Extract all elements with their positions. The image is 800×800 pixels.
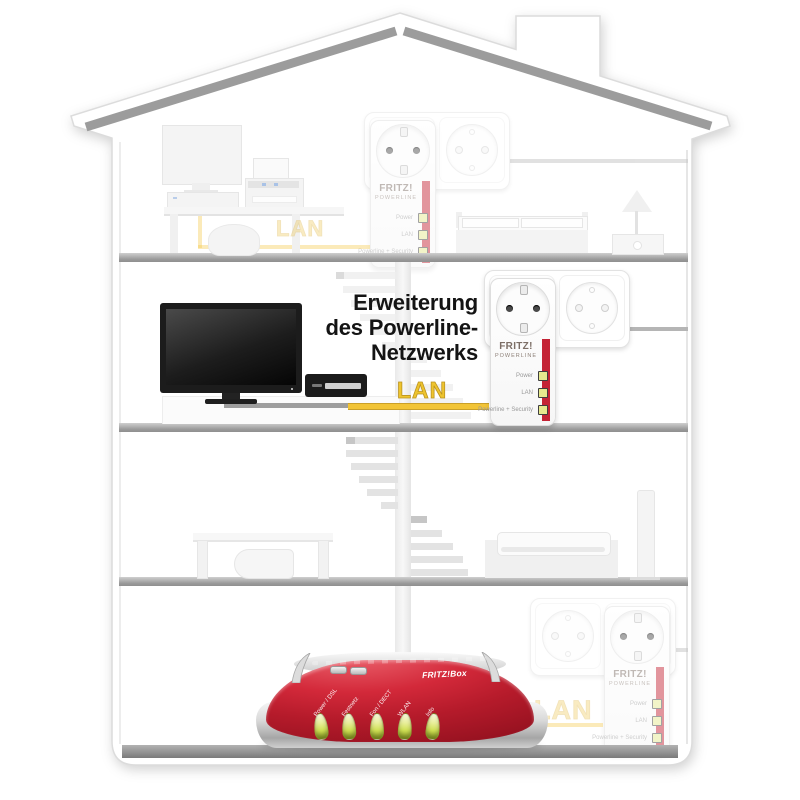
stair-step: [411, 370, 441, 377]
waste-bin: [208, 224, 260, 256]
table-leg: [197, 540, 208, 579]
adapter-brand: FRITZ! Powerline: [605, 669, 655, 687]
stair-step: [411, 516, 427, 523]
wlan-button: [330, 666, 347, 674]
fritzbox-router: FRITZ!Box Power / DSL Festnetz Fon / DEC…: [254, 646, 554, 754]
nightstand-knob: [633, 241, 642, 250]
tv-screen: [166, 309, 296, 385]
tv-stand-base: [205, 399, 257, 404]
socket-screw: [469, 129, 475, 135]
socket-hole: [601, 304, 609, 312]
power-led: [418, 213, 428, 223]
wall-socket: [446, 124, 498, 176]
earth-clip: [520, 323, 528, 333]
floor-lamp-base: [630, 577, 660, 580]
socket-screw: [565, 651, 571, 657]
socket-hole: [455, 146, 463, 154]
adapter-passthrough-socket: [376, 124, 430, 178]
powerline-adapter-main: FRITZ! Powerline Power LAN Powerline + S…: [484, 270, 634, 500]
printer-tray: [252, 196, 297, 203]
desk-leg: [170, 214, 178, 253]
socket-screw: [469, 165, 475, 171]
adapter-passthrough-socket: [610, 610, 664, 664]
earth-clip: [400, 165, 408, 175]
headline: Erweiterung des Powerline- Netzwerks: [300, 290, 478, 365]
pc-led: [173, 197, 177, 199]
lan-led: [538, 388, 548, 398]
headline-line-1: Erweiterung: [300, 290, 478, 315]
powerline-wall-wire-top: [506, 159, 688, 163]
stair-step: [346, 437, 355, 444]
adapter-passthrough-socket: [496, 282, 550, 336]
storage-box: [234, 549, 294, 579]
router-fin-left: [290, 653, 316, 683]
wall-socket: [566, 282, 618, 334]
led-row: Power: [491, 371, 551, 381]
sofa-seat-line: [501, 547, 605, 552]
earth-clip: [634, 651, 642, 661]
desktop-pc: [167, 192, 239, 208]
socket-hole: [647, 633, 654, 640]
earth-clip: [634, 613, 642, 623]
receiver-led: [312, 384, 322, 387]
led-row: LAN: [605, 716, 665, 726]
tv-standby-led: [291, 388, 293, 390]
stair-step: [411, 556, 463, 563]
stair-step: [411, 543, 453, 550]
desk-top: [164, 207, 344, 216]
power-led: [538, 371, 548, 381]
lan-led: [652, 716, 662, 726]
lan-label-top: LAN: [276, 216, 324, 242]
plate-cell: [559, 275, 625, 341]
earth-clip: [520, 285, 528, 295]
stair-step: [367, 489, 398, 496]
pillow: [462, 218, 519, 228]
stair-step: [411, 569, 468, 576]
monitor: [162, 125, 242, 185]
stair-step: [411, 530, 442, 537]
socket-hole: [533, 305, 540, 312]
socket-hole: [481, 146, 489, 154]
socket-hole: [386, 147, 393, 154]
adapter-body: FRITZ! Powerline Power LAN Powerline + S…: [490, 278, 556, 426]
receiver-display: [325, 383, 361, 389]
socket-hole: [506, 305, 513, 312]
adapter-brand: FRITZ! Powerline: [371, 183, 421, 201]
table-top: [193, 533, 333, 542]
stair-step: [381, 502, 398, 509]
socket-screw: [589, 323, 595, 329]
stair-step: [336, 272, 344, 279]
stair-step: [359, 476, 398, 483]
printer-led: [262, 183, 266, 186]
sofa-back: [497, 532, 611, 556]
bed-base: [456, 230, 588, 253]
lan-led: [418, 230, 428, 240]
powerline-security-led: [652, 733, 662, 743]
printer-led: [274, 183, 278, 186]
led-row: Power: [605, 699, 665, 709]
stair-step: [336, 272, 398, 279]
tv: [160, 303, 302, 393]
socket-screw: [589, 287, 595, 293]
socket-screw: [565, 615, 571, 621]
led-row: LAN: [371, 230, 431, 240]
socket-hole: [577, 632, 585, 640]
led-row: Powerline + Security: [605, 733, 665, 743]
led-row: LAN: [491, 388, 551, 398]
lan-cable-active: [348, 404, 489, 409]
tv-sideboard: [162, 396, 400, 424]
media-receiver: [305, 374, 367, 397]
socket-hole: [551, 632, 559, 640]
adapter-body: FRITZ! Powerline Power LAN Powerline + S…: [604, 606, 670, 754]
power-led: [652, 699, 662, 709]
floor-lamp: [637, 490, 655, 580]
table-leg: [318, 540, 329, 579]
stair-step: [351, 463, 398, 470]
diagram-canvas: LAN: [0, 0, 800, 800]
led-row: Powerline + Security: [491, 405, 551, 415]
headline-line-3: Netzwerks: [300, 340, 478, 365]
led-row: Power: [371, 213, 431, 223]
stair-step: [411, 412, 471, 419]
adapter-brand: FRITZ! Powerline: [491, 341, 541, 359]
plate-cell: [439, 117, 505, 183]
dect-button: [350, 667, 367, 675]
lan-label-active: LAN: [397, 377, 447, 404]
powerline-security-led: [538, 405, 548, 415]
stair-step: [346, 450, 398, 457]
adapter-body: FRITZ! Powerline Power LAN Powerline + S…: [370, 120, 436, 268]
lamp-stem: [635, 211, 638, 234]
pillow: [521, 218, 583, 228]
socket-hole: [575, 304, 583, 312]
socket-hole: [620, 633, 627, 640]
socket-hole: [413, 147, 420, 154]
powerline-wall-wire-mid: [629, 327, 688, 331]
floor-slab-1: [119, 253, 688, 262]
headline-line-2: des Powerline-: [300, 315, 478, 340]
earth-clip: [400, 127, 408, 137]
